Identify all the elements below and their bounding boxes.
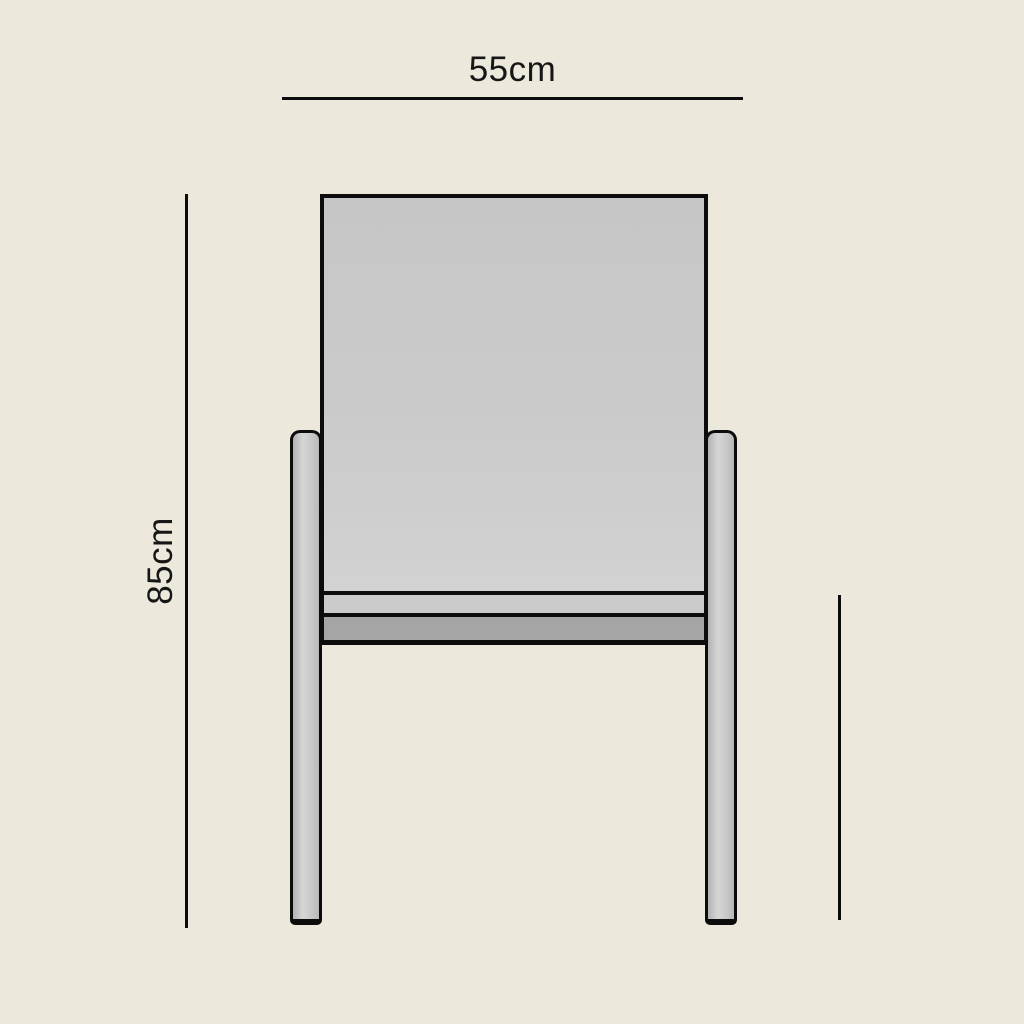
- width-dimension-line: [282, 97, 743, 100]
- chair-left-leg: [290, 430, 322, 925]
- height-dimension-label: 85cm: [141, 517, 181, 605]
- dimension-diagram: 55cm 85cm: [0, 0, 1024, 1024]
- chair-seat-apron: [320, 617, 708, 645]
- chair-seat-edge: [320, 595, 708, 617]
- chair-right-leg: [705, 430, 737, 925]
- seat-height-reference-line: [838, 595, 841, 920]
- chair-backrest: [320, 194, 708, 595]
- width-dimension-label: 55cm: [282, 50, 743, 90]
- height-dimension-line: [185, 194, 188, 928]
